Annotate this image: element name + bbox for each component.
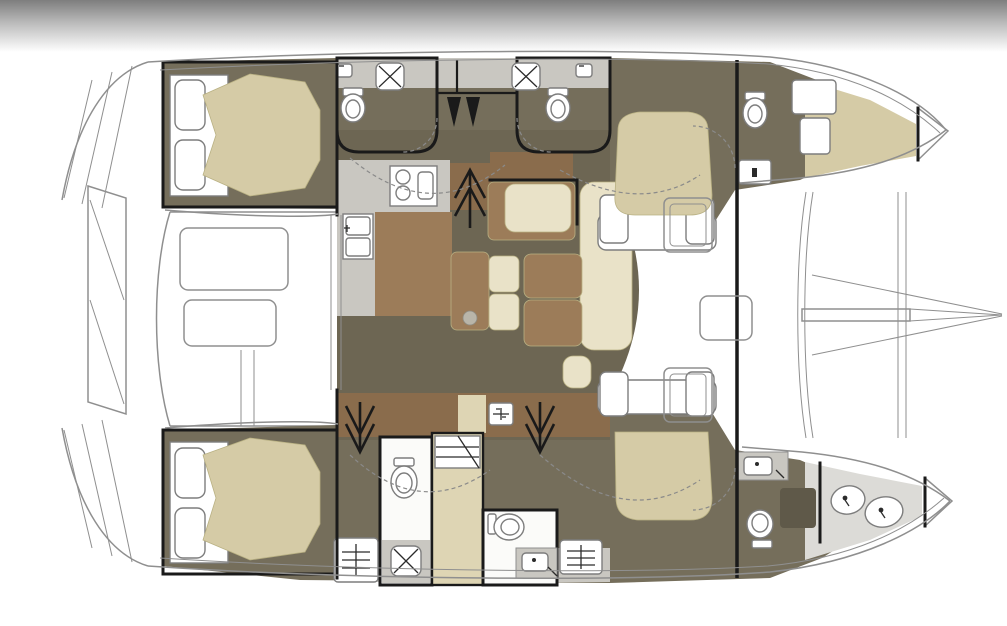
island-bed-mattress <box>615 432 712 520</box>
starboard-head-aft <box>380 437 432 585</box>
toilet-icon <box>546 88 570 122</box>
sink-icon <box>576 64 592 77</box>
island-bed-mattress <box>615 112 712 215</box>
dinette-wood-counter <box>490 152 573 180</box>
shower-icon <box>512 63 540 90</box>
pillow <box>175 448 205 498</box>
pillow <box>175 508 205 558</box>
shower-pan-dark <box>780 488 816 528</box>
catamaran-floor-plan <box>0 0 1007 626</box>
cabinet-tan-panel <box>458 395 486 433</box>
shower-pan <box>792 80 836 114</box>
shower-icon <box>376 63 404 90</box>
dinette-cushion <box>505 184 571 232</box>
bed-mattress <box>203 74 320 196</box>
top-gradient-band <box>0 0 1007 52</box>
pillow <box>175 80 205 130</box>
stool-2 <box>489 294 519 330</box>
stool-1 <box>489 256 519 292</box>
pouf <box>563 356 591 388</box>
table-leg <box>463 311 477 325</box>
shower-icon <box>391 546 421 576</box>
toilet-icon <box>341 88 365 122</box>
bed-mattress <box>203 438 320 560</box>
pillow <box>175 140 205 190</box>
wardrobe-shelves-icon <box>435 436 480 468</box>
stove-icon <box>390 166 437 206</box>
chaise-cushion-1 <box>524 254 582 298</box>
wardrobe <box>432 433 483 585</box>
chaise-cushion-2 <box>524 300 582 346</box>
sink-icon <box>516 548 557 578</box>
louver-locker-icon <box>560 540 602 574</box>
toilet-icon <box>391 458 417 498</box>
sink-icon <box>738 452 788 480</box>
toilet-icon <box>743 92 767 128</box>
shower-seat <box>800 118 830 154</box>
starboard-head-forward <box>483 510 557 585</box>
cabinet-sink-icon <box>489 403 513 425</box>
bed-step <box>686 372 714 416</box>
bed-step <box>600 372 628 416</box>
galley-wood-floor <box>375 212 452 316</box>
double-sink-icon <box>343 214 373 259</box>
